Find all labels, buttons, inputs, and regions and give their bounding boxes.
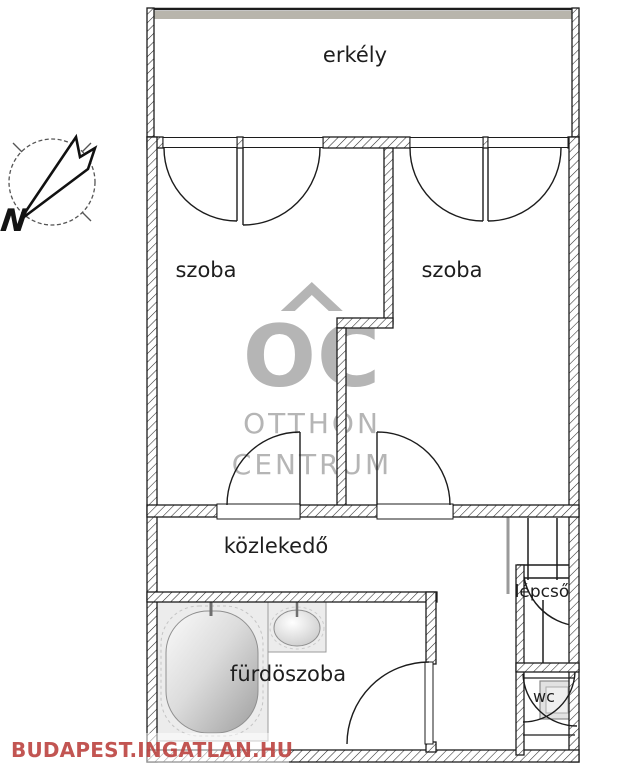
footer-watermark: BUDAPEST.INGATLAN.HU [0, 733, 289, 766]
room-label-room-right: szoba [421, 258, 482, 282]
floorplan-canvas: OC OTTHON CENTRUM [0, 0, 619, 768]
room-label-room-left: szoba [175, 258, 236, 282]
footer-brand-text: BUDAPEST.INGATLAN.HU [11, 738, 293, 762]
floorplan-drawing [0, 0, 619, 768]
room-label-wc: wc [533, 687, 555, 706]
compass-north-label: N [0, 203, 29, 239]
sink-icon [268, 600, 326, 652]
room-label-bathroom: fürdöszoba [230, 662, 346, 686]
room-label-balcony: erkély [323, 43, 387, 67]
balcony-railing [154, 11, 572, 19]
room-label-hallway: közlekedő [224, 534, 329, 558]
room-label-stairs: lépcső [515, 582, 570, 602]
